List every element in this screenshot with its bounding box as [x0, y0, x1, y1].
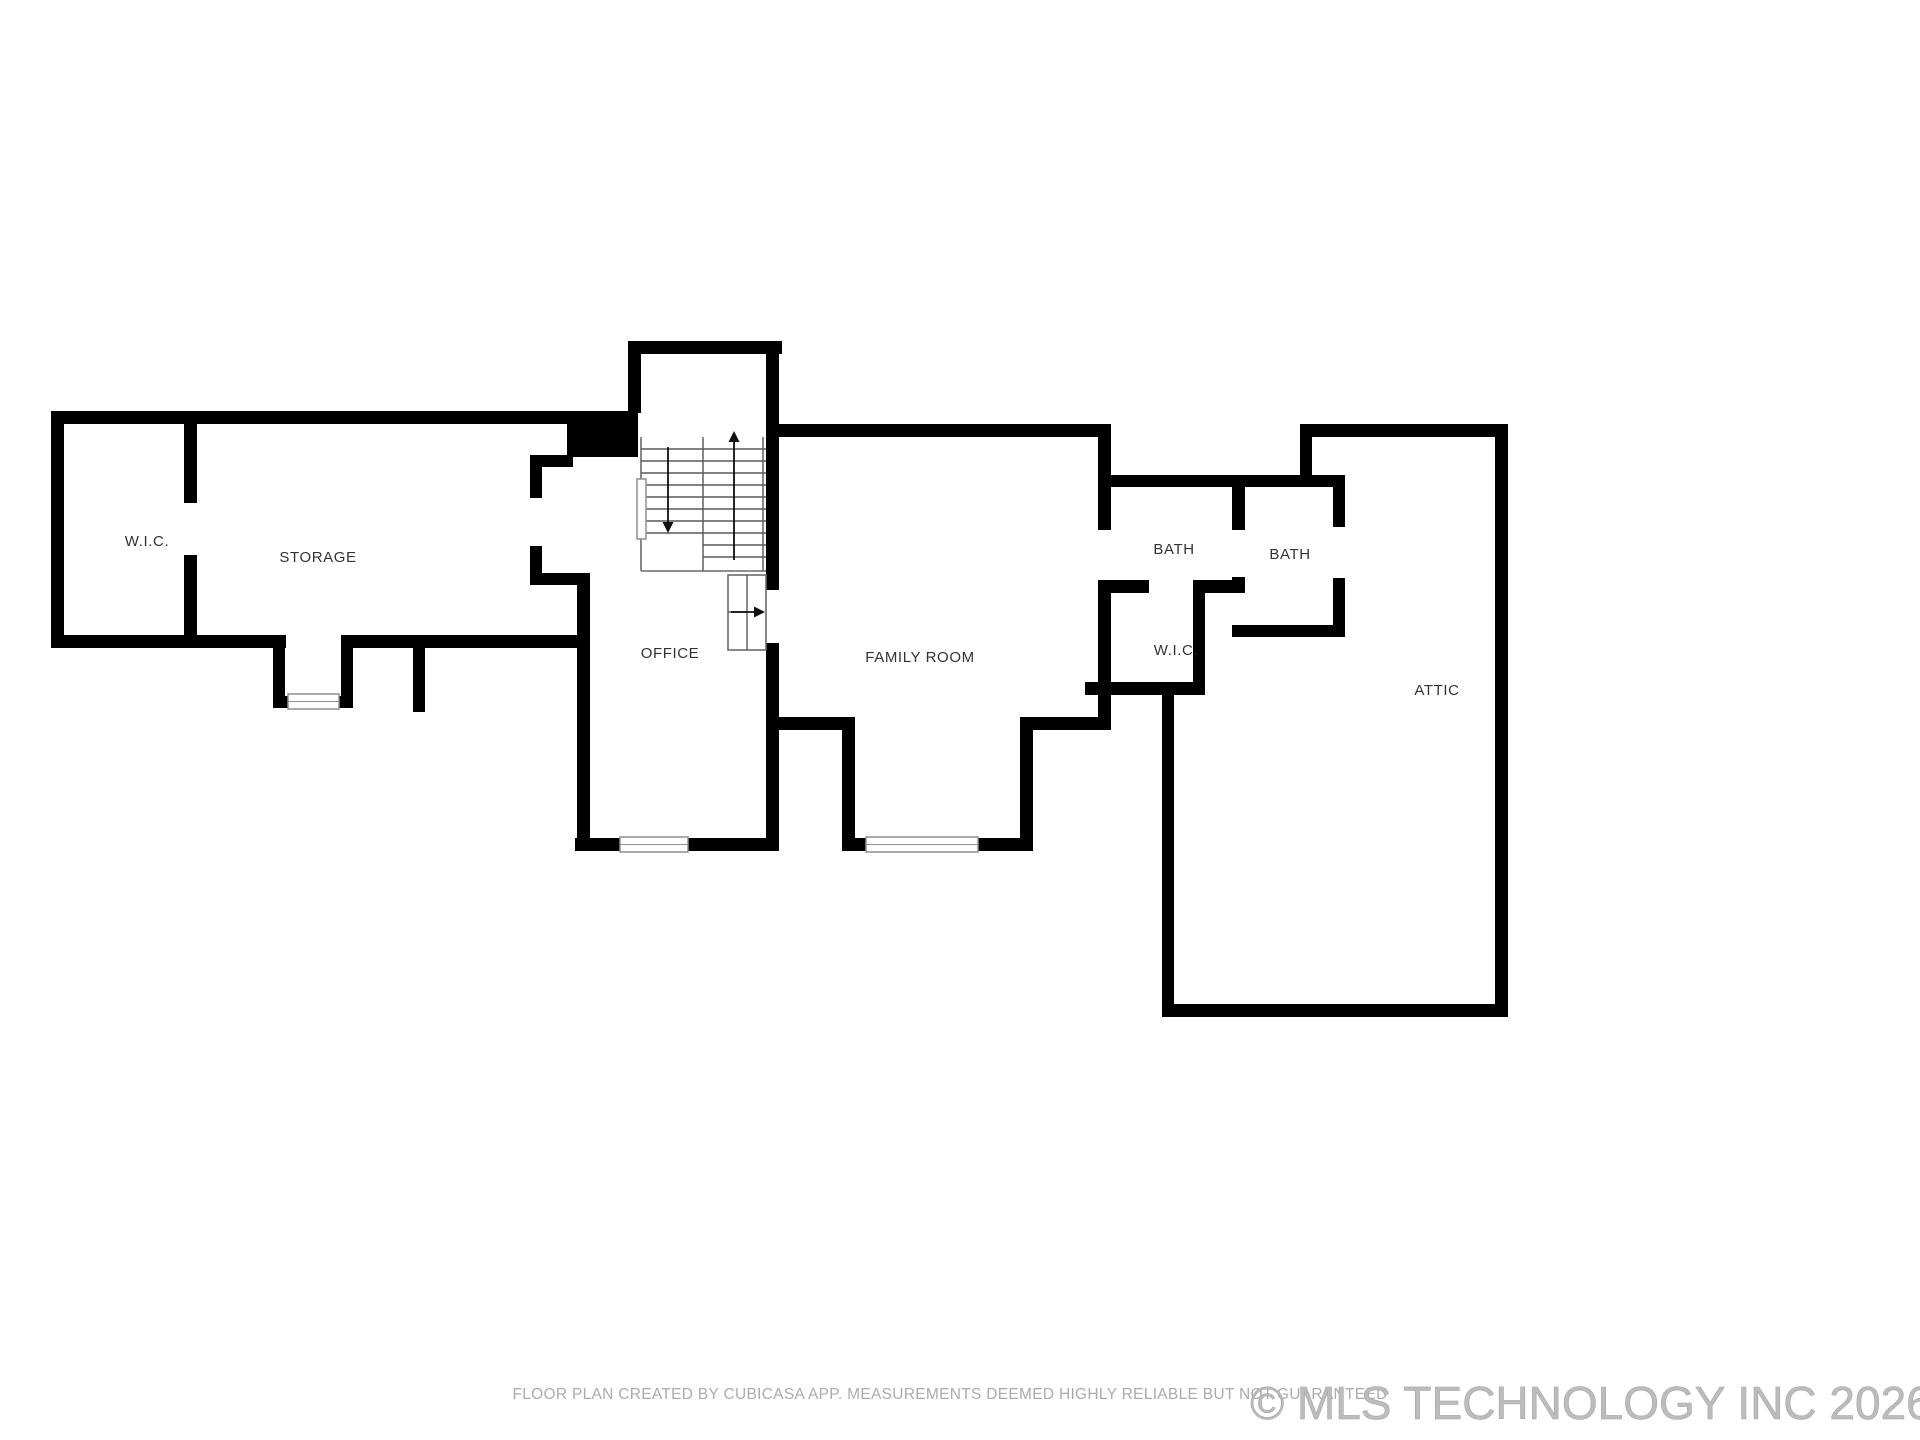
walls-layer — [51, 341, 1508, 1017]
wall — [1300, 424, 1508, 437]
family-room-window — [866, 837, 978, 852]
wall — [628, 341, 782, 354]
wall — [1020, 717, 1033, 851]
stairs-up-arrow-icon — [729, 431, 740, 560]
wall — [1098, 580, 1149, 593]
wall — [1085, 682, 1205, 695]
room-label-bath-right: BATH — [1269, 546, 1310, 563]
wall — [540, 573, 590, 585]
wall — [51, 411, 64, 648]
wall — [1495, 424, 1508, 1017]
wall — [1098, 580, 1111, 730]
room-label-office: OFFICE — [641, 645, 700, 662]
floor-plan-page: W.I.C. STORAGE OFFICE FAMILY ROOM BATH B… — [0, 0, 1920, 1440]
wall — [1333, 475, 1345, 527]
wall — [766, 643, 779, 851]
room-label-attic: ATTIC — [1414, 682, 1459, 699]
wall — [184, 411, 197, 503]
room-labels-layer: W.I.C. STORAGE OFFICE FAMILY ROOM BATH B… — [125, 533, 1460, 699]
staircase — [637, 431, 766, 650]
wall — [628, 341, 641, 413]
room-label-wic-left: W.I.C. — [125, 533, 169, 550]
office-window — [620, 837, 688, 852]
wall — [51, 411, 567, 424]
wall — [766, 341, 779, 437]
room-label-family-room: FAMILY ROOM — [865, 649, 974, 666]
floor-plan-drawing: W.I.C. STORAGE OFFICE FAMILY ROOM BATH B… — [0, 0, 1920, 1440]
footer-watermark: © MLS TECHNOLOGY INC 2026 — [1250, 1377, 1920, 1429]
wall — [1193, 580, 1205, 695]
room-label-storage: STORAGE — [279, 549, 356, 566]
wall — [413, 647, 425, 712]
wall — [1162, 682, 1174, 1017]
stairs-exit-arrow-icon — [731, 607, 765, 618]
wall — [577, 585, 590, 851]
wall — [184, 555, 197, 648]
windows-layer — [288, 694, 978, 852]
wall — [530, 455, 573, 467]
wall — [51, 635, 286, 648]
wall — [1232, 577, 1245, 593]
footer: FLOOR PLAN CREATED BY CUBICASA APP. MEAS… — [512, 1377, 1920, 1429]
wall — [1162, 1004, 1508, 1017]
room-label-wic-right: W.I.C. — [1154, 642, 1198, 659]
wall — [1020, 717, 1111, 730]
room-label-bath-left: BATH — [1153, 541, 1194, 558]
wall — [567, 411, 638, 457]
wall — [341, 635, 590, 648]
wall — [766, 437, 779, 590]
wall — [842, 717, 855, 851]
stair-railing — [637, 479, 646, 539]
storage-window — [288, 694, 339, 709]
wall — [1232, 625, 1345, 637]
stairs-down-arrow-icon — [663, 447, 674, 533]
wall — [530, 467, 542, 498]
wall — [1232, 487, 1245, 530]
wall — [779, 424, 1111, 437]
